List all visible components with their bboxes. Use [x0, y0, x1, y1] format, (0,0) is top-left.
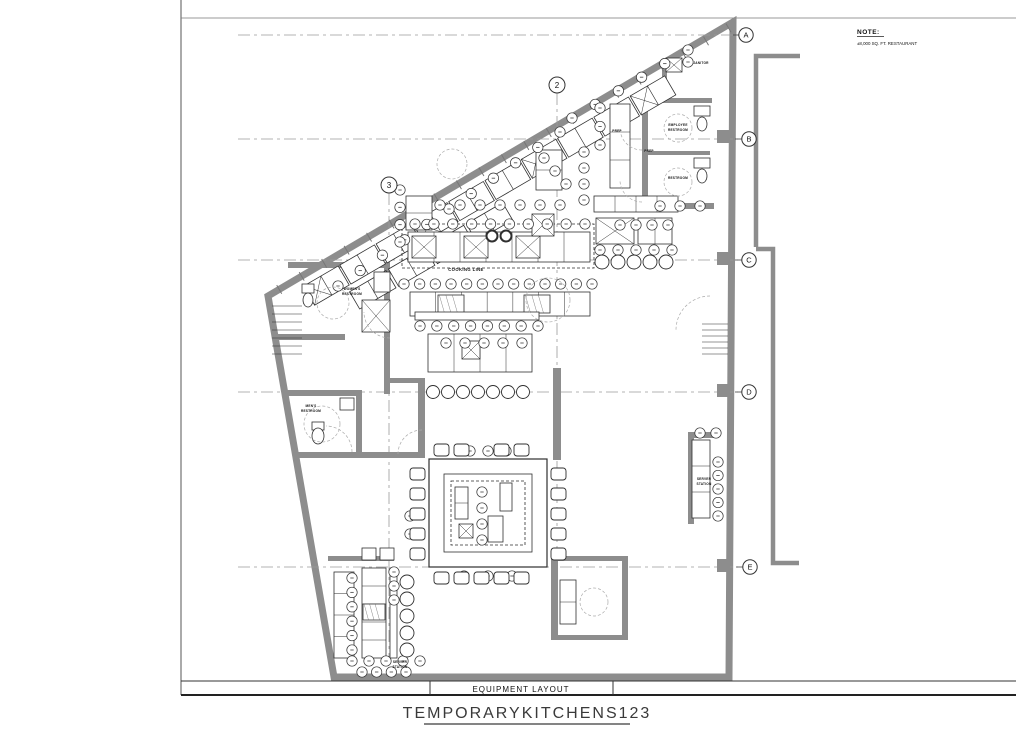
stock-pot: [595, 255, 609, 269]
svg-text:B: B: [746, 135, 751, 144]
equipment-tag: [485, 219, 495, 229]
equipment-tag: [347, 630, 357, 640]
equipment-tag: [655, 201, 665, 211]
equipment-tag: [493, 279, 503, 289]
chair: [514, 572, 529, 584]
chair: [494, 572, 509, 584]
chair: [551, 508, 566, 520]
mens-restroom-label-line1: MEN'S: [306, 404, 317, 408]
equipment-tag: [347, 645, 357, 655]
project-title: TEMPORARYKITCHENS123: [403, 705, 652, 722]
equipment-tag: [477, 487, 487, 497]
equipment-tag: [579, 163, 589, 173]
equipment-tag: [508, 279, 518, 289]
svg-text:E: E: [747, 563, 752, 572]
chair: [434, 444, 449, 456]
equipment-tag: [461, 279, 471, 289]
equipment-tag: [540, 279, 550, 289]
equipment-tag: [475, 200, 485, 210]
equipment-tag: [595, 245, 605, 255]
equipment-tag: [479, 338, 489, 348]
wall-segment: [553, 368, 561, 460]
grid-bubble-c: C: [735, 253, 756, 267]
stool: [457, 386, 470, 399]
equipment-tag: [713, 484, 723, 494]
stool: [427, 386, 440, 399]
equipment-tag: [347, 587, 357, 597]
equipment-tag: [613, 245, 623, 255]
wall-segment: [551, 556, 558, 640]
grid-bubble-d: D: [735, 385, 756, 399]
equipment-tag: [533, 321, 543, 331]
equipment-block: [374, 272, 390, 292]
server-station-left-label-line2: STATION: [393, 665, 408, 669]
equipment-tag: [364, 656, 374, 666]
stool: [502, 386, 515, 399]
equipment-tag: [579, 147, 589, 157]
equipment-tag: [516, 321, 526, 331]
equipment-tag: [631, 245, 641, 255]
equipment-tag: [381, 656, 391, 666]
equipment-tag: [561, 179, 571, 189]
employee-restroom-label-line1: EMPLOYEE: [668, 123, 687, 127]
equipment-tag: [579, 195, 589, 205]
grid-bubble-b: B: [735, 132, 756, 146]
bar-stool: [400, 626, 414, 640]
wall-segment: [388, 378, 422, 383]
equipment-tag: [460, 338, 470, 348]
equipment-tag: [488, 173, 498, 183]
wall-segment: [295, 452, 425, 458]
equipment-tag: [523, 219, 533, 229]
svg-text:A: A: [743, 31, 748, 40]
equipment-tag: [414, 279, 424, 289]
equipment-tag: [539, 153, 549, 163]
chair: [474, 572, 489, 584]
stock-pot: [627, 255, 641, 269]
floorplan-canvas: JANITOR EMPLOYEE RESTROOM RESTROOM PREP …: [0, 0, 1024, 731]
equipment-tag: [389, 595, 399, 605]
wall-segment: [717, 130, 730, 143]
equipment-tag: [499, 321, 509, 331]
equipment-tag: [504, 219, 514, 229]
equipment-tag: [477, 279, 487, 289]
stock-pot: [659, 255, 673, 269]
equipment-tag: [533, 142, 543, 152]
equipment-tag: [389, 567, 399, 577]
equipment-tag: [579, 179, 589, 189]
server-station-right-label-line1: SERVER: [697, 477, 712, 481]
equipment-tag: [631, 220, 641, 230]
equipment-tag: [683, 57, 693, 67]
equipment-tag: [663, 220, 673, 230]
equipment-tag: [441, 338, 451, 348]
equipment-tag: [498, 338, 508, 348]
equipment-tag: [483, 446, 493, 456]
equipment-tag: [561, 219, 571, 229]
wall-segment: [418, 378, 425, 454]
mens-restroom-label-line2: RESTROOM: [301, 409, 321, 413]
equipment-tag: [357, 667, 367, 677]
note-body: ±8,000 SQ. FT. RESTAURANT: [857, 41, 917, 46]
chair: [410, 468, 425, 480]
equipment-block: [694, 158, 710, 168]
stool: [487, 386, 500, 399]
restroom-label: RESTROOM: [668, 176, 688, 180]
equipment-tag: [580, 219, 590, 229]
equipment-tag: [713, 497, 723, 507]
wall-segment: [648, 151, 710, 155]
equipment-tag: [667, 245, 677, 255]
equipment-tag: [347, 656, 357, 666]
janitor-label: JANITOR: [693, 61, 709, 65]
stool: [442, 386, 455, 399]
equipment-block: [415, 312, 539, 320]
equipment-tag: [613, 86, 623, 96]
equipment-tag: [713, 511, 723, 521]
equipment-tag: [595, 140, 605, 150]
equipment-tag: [567, 113, 577, 123]
chair: [410, 548, 425, 560]
wall-segment: [622, 556, 628, 640]
drawing-label: EQUIPMENT LAYOUT: [472, 685, 569, 694]
equipment-tag: [477, 535, 487, 545]
wall-segment: [356, 390, 362, 458]
equipment-tag: [647, 220, 657, 230]
equipment-tag: [399, 279, 409, 289]
svg-text:D: D: [746, 388, 752, 397]
equipment-block: [340, 398, 354, 410]
equipment-tag: [410, 219, 420, 229]
wall-segment: [717, 559, 730, 572]
equipment-tag: [465, 321, 475, 331]
chair: [434, 572, 449, 584]
stock-pot: [643, 255, 657, 269]
svg-text:2: 2: [555, 81, 560, 90]
equipment-tag: [713, 470, 723, 480]
equipment-tag: [466, 188, 476, 198]
equipment-block: [380, 548, 394, 560]
equipment-tag: [477, 503, 487, 513]
equipment-tag: [555, 200, 565, 210]
bar-stool: [400, 643, 414, 657]
equipment-tag: [595, 103, 605, 113]
prep-label-b: PREP: [644, 149, 654, 153]
equipment-tag: [535, 200, 545, 210]
equipment-tag: [695, 201, 705, 211]
equipment-tag: [432, 321, 442, 331]
equipment-tag: [371, 667, 381, 677]
equipment-block: [362, 548, 376, 560]
burner: [501, 231, 512, 242]
equipment-tag: [695, 428, 705, 438]
equipment-tag: [415, 321, 425, 331]
equipment-tag: [649, 245, 659, 255]
bar-stool: [400, 592, 414, 606]
chair: [454, 444, 469, 456]
equipment-tag: [571, 279, 581, 289]
equipment-block: [694, 106, 710, 116]
svg-text:C: C: [746, 256, 752, 265]
equipment-tag: [675, 201, 685, 211]
equipment-tag: [455, 200, 465, 210]
prep-label-a: PREP: [612, 129, 622, 133]
equipment-tag: [415, 656, 425, 666]
equipment-tag: [550, 166, 560, 176]
equipment-tag: [482, 321, 492, 331]
equipment-tag: [466, 219, 476, 229]
equipment-tag: [711, 428, 721, 438]
server-station-right-label-line2: STATION: [697, 482, 712, 486]
equipment-tag: [615, 220, 625, 230]
wall-segment: [717, 252, 730, 265]
equipment-tag: [517, 338, 527, 348]
equipment-tag: [542, 219, 552, 229]
stock-pot: [611, 255, 625, 269]
equipment-tag: [429, 219, 439, 229]
equipment-tag: [449, 321, 459, 331]
toilet: [303, 293, 313, 307]
wall-segment: [642, 100, 648, 210]
bar-stool: [400, 575, 414, 589]
stool: [517, 386, 530, 399]
bar-stool: [400, 609, 414, 623]
equipment-tag: [389, 581, 399, 591]
wall-segment: [717, 384, 730, 397]
chair: [410, 528, 425, 540]
equipment-tag: [395, 219, 405, 229]
chair: [551, 488, 566, 500]
grid-bubble-e: E: [736, 560, 757, 574]
equipment-tag: [446, 279, 456, 289]
chair: [514, 444, 529, 456]
equipment-tag: [660, 58, 670, 68]
equipment-tag: [430, 279, 440, 289]
equipment-tag: [595, 121, 605, 131]
clearance-circle: [437, 149, 467, 179]
equipment-tag: [395, 202, 405, 212]
toilet: [697, 117, 707, 131]
chair: [410, 508, 425, 520]
chair: [551, 548, 566, 560]
svg-text:3: 3: [387, 181, 392, 190]
equipment-tag: [395, 237, 405, 247]
equipment-tag: [435, 200, 445, 210]
equipment-tag: [347, 573, 357, 583]
neighbor-wall: [756, 249, 799, 563]
equipment-tag: [333, 281, 343, 291]
womens-restroom-label-line2: RESTROOM: [342, 292, 362, 296]
neighbor-wall: [756, 56, 800, 247]
stool: [472, 386, 485, 399]
wall-segment: [551, 635, 628, 640]
burner: [487, 231, 498, 242]
grid-bubble-2: 2: [549, 77, 565, 93]
womens-restroom-label-line1: WOMEN'S: [344, 287, 361, 291]
chair: [410, 488, 425, 500]
chair: [551, 468, 566, 480]
grid-bubble-3: 3: [381, 177, 397, 193]
equipment-tag: [510, 158, 520, 168]
equipment-tag: [515, 200, 525, 210]
employee-restroom-label-line2: RESTROOM: [668, 128, 688, 132]
toilet: [697, 169, 707, 183]
server-station-left-label-line1: SERVER: [393, 660, 408, 664]
wall-segment: [275, 334, 345, 340]
equipment-tag: [636, 72, 646, 82]
chair: [551, 528, 566, 540]
equipment-tag: [347, 616, 357, 626]
drawing-sheet: JANITOR EMPLOYEE RESTROOM RESTROOM PREP …: [0, 0, 1024, 731]
note-title: NOTE:: [857, 29, 880, 36]
equipment-tag: [555, 279, 565, 289]
equipment-block: [610, 104, 630, 188]
equipment-block: [500, 483, 512, 511]
equipment-tag: [448, 219, 458, 229]
equipment-block: [488, 516, 503, 542]
equipment-tag: [377, 250, 387, 260]
equipment-tag: [477, 519, 487, 529]
equipment-tag: [587, 279, 597, 289]
equipment-tag: [713, 457, 723, 467]
cooking-line-label: COOKING LINE: [448, 267, 484, 272]
wall-segment: [284, 390, 360, 396]
equipment-block: [302, 284, 314, 293]
equipment-tag: [495, 200, 505, 210]
chair: [494, 444, 509, 456]
equipment-tag: [355, 265, 365, 275]
chair: [454, 572, 469, 584]
equipment-tag: [347, 602, 357, 612]
equipment-tag: [683, 45, 693, 55]
equipment-tag: [555, 127, 565, 137]
